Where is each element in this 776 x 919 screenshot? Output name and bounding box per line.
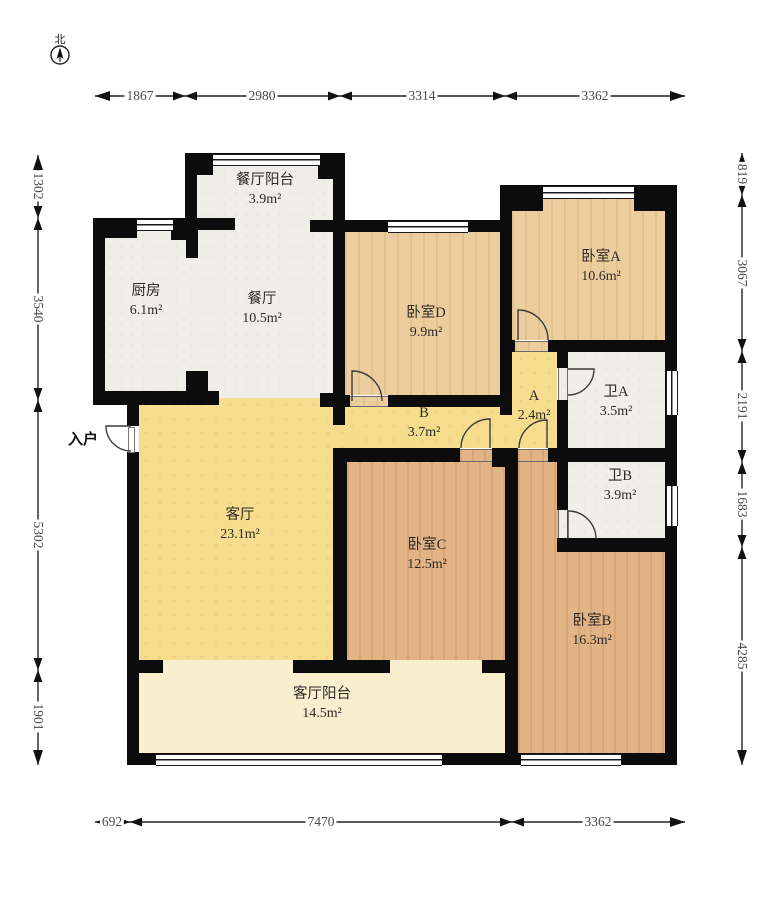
dim-left-4: 1901 bbox=[30, 702, 46, 733]
dim-right-5: 4285 bbox=[734, 641, 750, 672]
wall bbox=[127, 391, 219, 405]
room-name: 厨房 bbox=[130, 281, 163, 301]
dim-bottom-1: 692 bbox=[100, 814, 124, 830]
room-label-bedroom-d: 卧室D 9.9m² bbox=[406, 303, 445, 343]
room-area: 23.1m² bbox=[220, 525, 260, 545]
room-name: 客厅 bbox=[220, 505, 260, 525]
room-area: 3.7m² bbox=[408, 423, 441, 443]
room-label-living: 客厅 23.1m² bbox=[220, 505, 260, 545]
compass-north-label: 北 bbox=[55, 31, 66, 47]
window bbox=[156, 754, 442, 766]
wall bbox=[557, 538, 677, 552]
room-label-living-balcony: 客厅阳台 14.5m² bbox=[293, 684, 351, 724]
window bbox=[137, 219, 173, 231]
dim-right-4: 1683 bbox=[734, 489, 750, 520]
wall bbox=[333, 448, 460, 462]
dim-top-3: 3314 bbox=[407, 88, 438, 104]
door-threshold bbox=[558, 510, 568, 538]
door-threshold bbox=[558, 368, 568, 400]
wall bbox=[333, 395, 350, 407]
wall bbox=[548, 448, 557, 462]
room-name: 卧室C bbox=[407, 535, 447, 555]
wall bbox=[333, 448, 347, 662]
room-label-bath-b: 卫B 3.9m² bbox=[604, 466, 637, 506]
wall bbox=[293, 660, 390, 673]
floor-plan: 北 入户 餐厅阳台 3.9m² 厨房 6.1m² 餐厅 10.5m² 卧室D 9… bbox=[0, 0, 776, 919]
window bbox=[521, 754, 621, 766]
window bbox=[666, 371, 678, 415]
room-area: 10.6m² bbox=[581, 267, 621, 287]
room-area: 3.5m² bbox=[600, 402, 633, 422]
room-name: B bbox=[408, 403, 441, 423]
room-name: 餐厅 bbox=[242, 289, 282, 309]
wall bbox=[500, 340, 515, 352]
dim-top-2: 2980 bbox=[247, 88, 278, 104]
room-area: 3.9m² bbox=[604, 486, 637, 506]
room-area: 9.9m² bbox=[406, 323, 445, 343]
room-name: 客厅阳台 bbox=[293, 684, 351, 704]
room-name: 卫A bbox=[600, 382, 633, 402]
dim-left-2: 3540 bbox=[30, 294, 46, 325]
wall bbox=[548, 340, 677, 352]
door-threshold bbox=[350, 396, 388, 407]
compass-icon bbox=[51, 46, 69, 64]
room-label-dining-balcony: 餐厅阳台 3.9m² bbox=[236, 170, 294, 210]
dim-left-3: 5302 bbox=[30, 520, 46, 551]
window bbox=[666, 486, 678, 526]
room-label-corridor-b: B 3.7m² bbox=[408, 403, 441, 443]
wall bbox=[557, 352, 568, 368]
window bbox=[388, 221, 468, 233]
room-area: 10.5m² bbox=[242, 309, 282, 329]
room-label-bedroom-b: 卧室B 16.3m² bbox=[572, 611, 612, 651]
dim-bottom-2: 7470 bbox=[306, 814, 337, 830]
room-label-hall-a: A 2.4m² bbox=[518, 386, 551, 426]
dim-top-1: 1867 bbox=[125, 88, 156, 104]
dim-left-1: 1302 bbox=[30, 171, 46, 202]
room-label-kitchen: 厨房 6.1m² bbox=[130, 281, 163, 321]
room-name: A bbox=[518, 386, 551, 406]
window bbox=[543, 186, 634, 199]
wall bbox=[557, 400, 568, 448]
dim-bottom-3: 3362 bbox=[583, 814, 614, 830]
wall bbox=[388, 395, 512, 407]
room-name: 卫B bbox=[604, 466, 637, 486]
door-threshold bbox=[515, 341, 548, 352]
wall bbox=[127, 660, 163, 673]
room-area: 12.5m² bbox=[407, 555, 447, 575]
dim-right-2: 3067 bbox=[734, 258, 750, 289]
room-area: 6.1m² bbox=[130, 301, 163, 321]
room-label-bedroom-a: 卧室A 10.6m² bbox=[581, 247, 621, 287]
wall bbox=[127, 452, 139, 765]
door-threshold bbox=[460, 449, 492, 462]
door-threshold bbox=[518, 449, 548, 462]
room-area: 16.3m² bbox=[572, 631, 612, 651]
window bbox=[213, 154, 320, 166]
dim-top-4: 3362 bbox=[580, 88, 611, 104]
dim-right-3: 2191 bbox=[734, 391, 750, 422]
dim-right-1: 819 bbox=[734, 162, 750, 186]
room-label-dining: 餐厅 10.5m² bbox=[242, 289, 282, 329]
room-name: 卧室D bbox=[406, 303, 445, 323]
wall bbox=[186, 230, 198, 258]
wall bbox=[665, 185, 677, 765]
wall bbox=[127, 391, 139, 426]
wall bbox=[634, 185, 677, 211]
room-label-bath-a: 卫A 3.5m² bbox=[600, 382, 633, 422]
wall bbox=[500, 185, 512, 415]
room-name: 卧室B bbox=[572, 611, 612, 631]
room-area: 3.9m² bbox=[236, 190, 294, 210]
wall bbox=[93, 218, 105, 405]
room-area: 2.4m² bbox=[518, 406, 551, 426]
room-name: 餐厅阳台 bbox=[236, 170, 294, 190]
wall bbox=[557, 448, 677, 462]
room-name: 卧室A bbox=[581, 247, 621, 267]
room-area: 14.5m² bbox=[293, 704, 351, 724]
entrance-label: 入户 bbox=[68, 428, 98, 449]
entry-door-leaf bbox=[128, 427, 135, 453]
room-label-bedroom-c: 卧室C 12.5m² bbox=[407, 535, 447, 575]
wall bbox=[557, 462, 568, 510]
wall bbox=[505, 462, 518, 753]
